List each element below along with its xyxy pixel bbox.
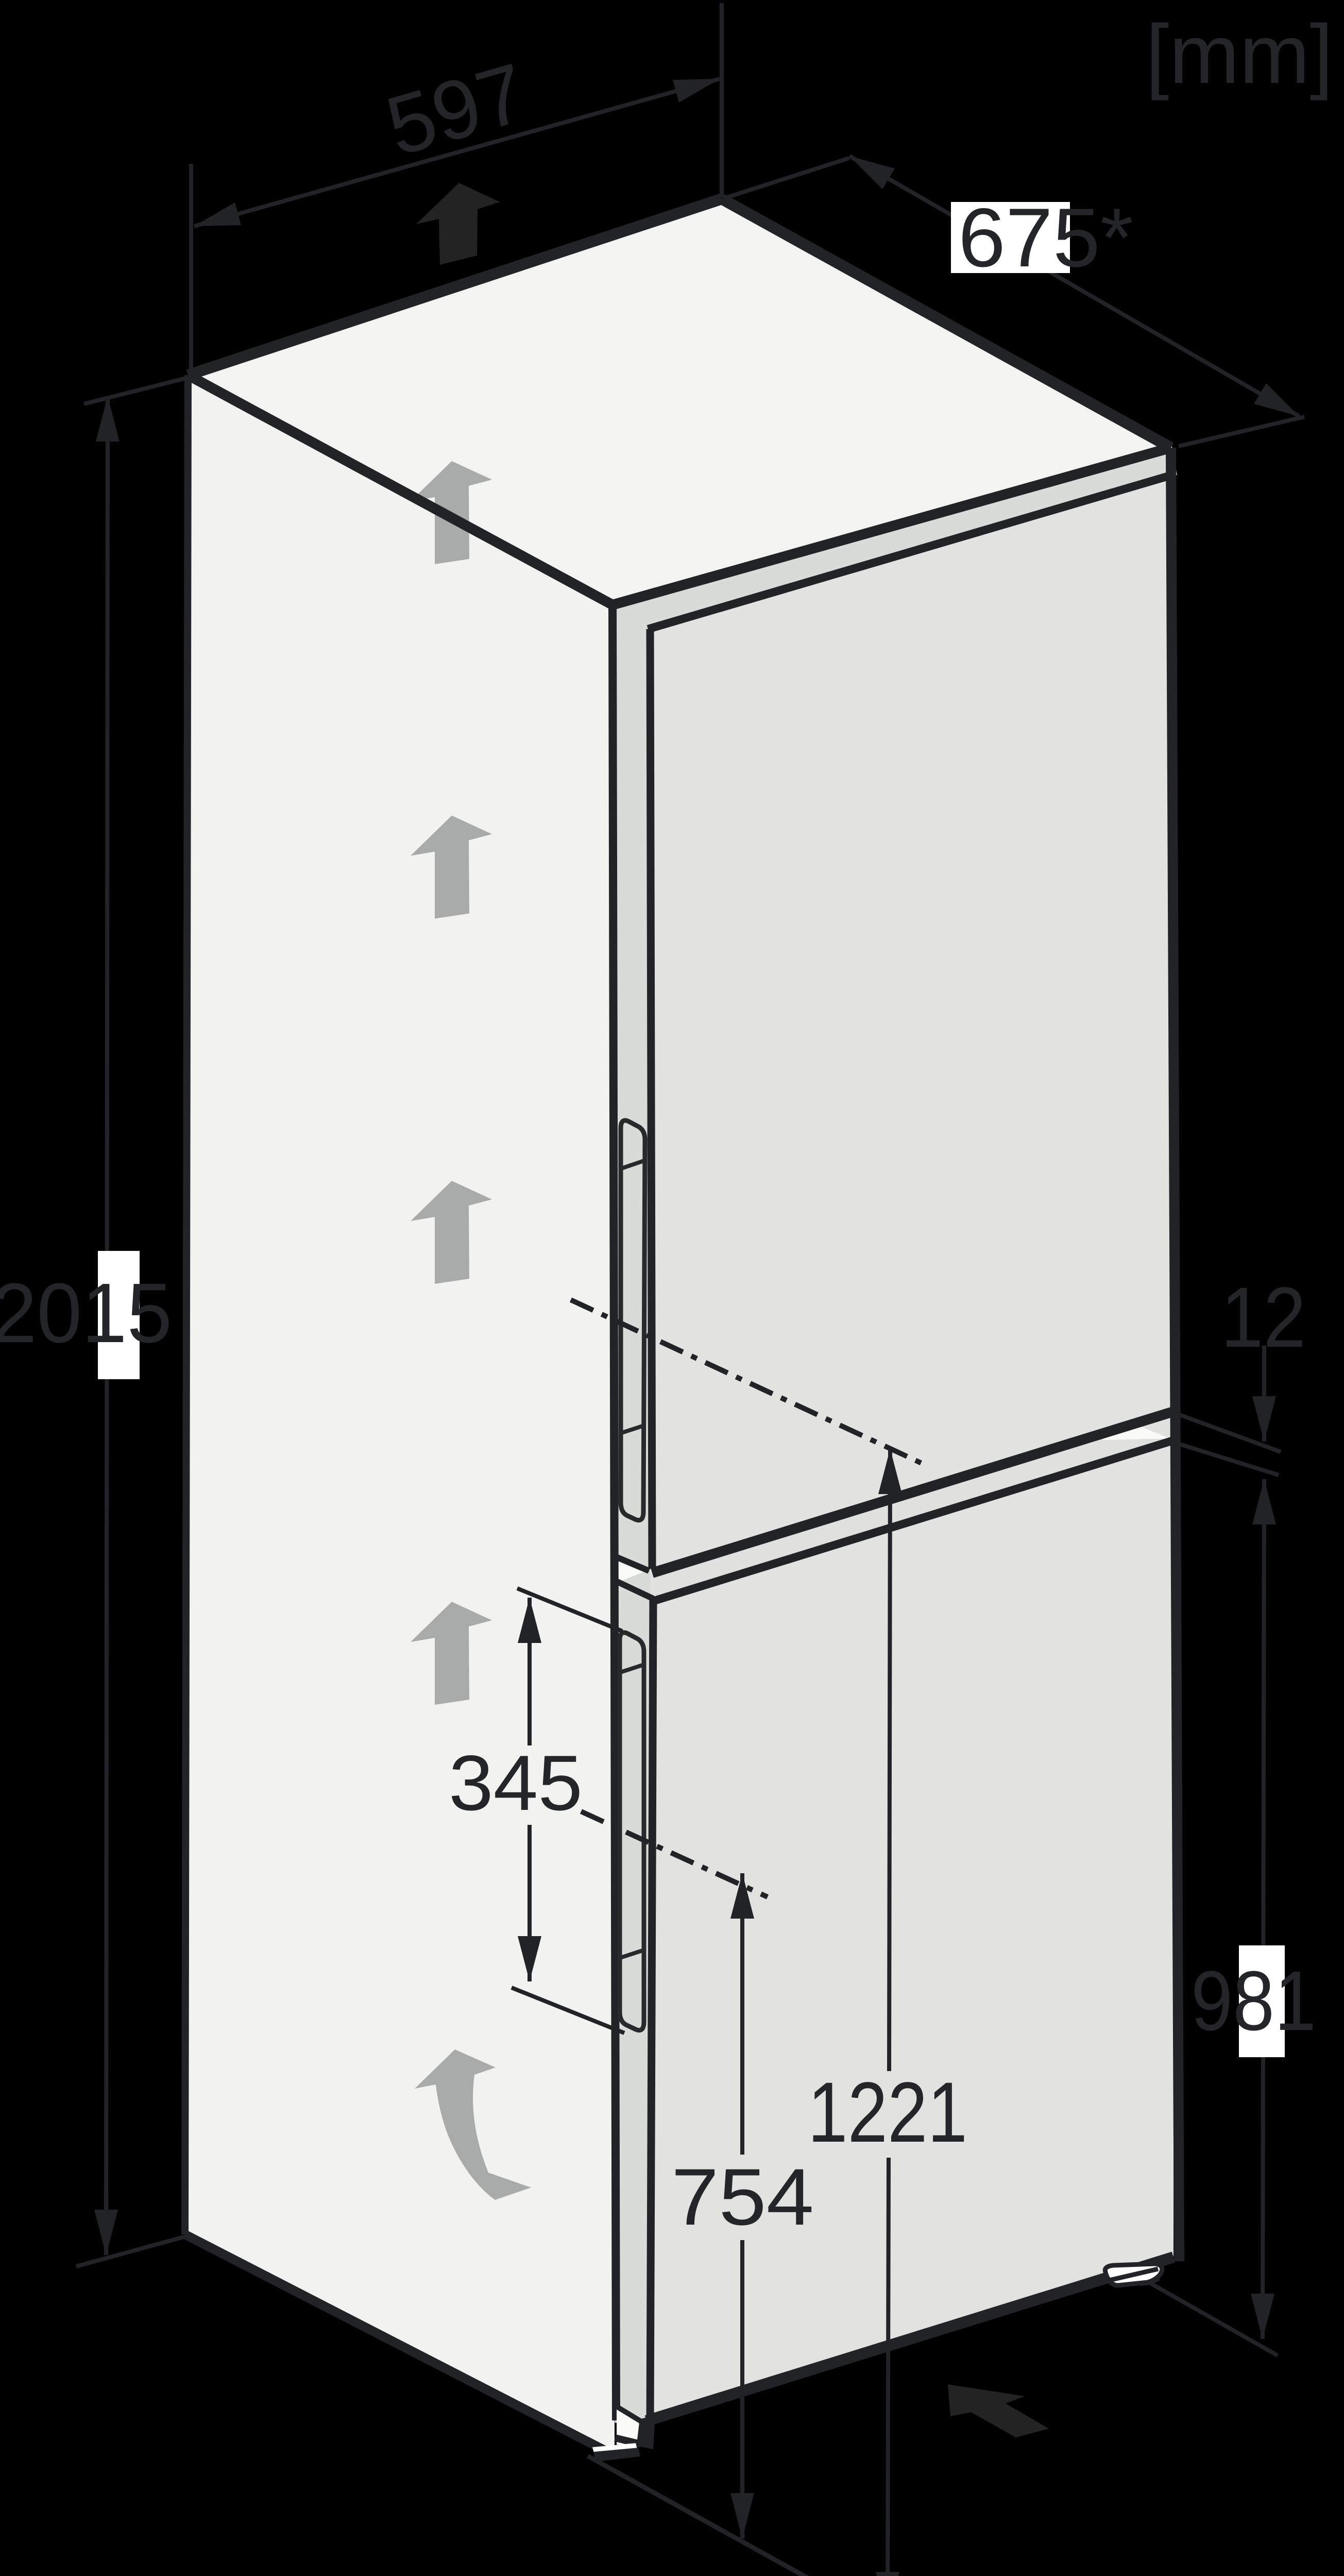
svg-text:2015: 2015 xyxy=(0,1266,172,1360)
svg-text:12: 12 xyxy=(1221,1270,1306,1365)
svg-text:675*: 675* xyxy=(958,191,1133,284)
svg-text:754: 754 xyxy=(671,2153,814,2242)
svg-text:345: 345 xyxy=(449,1739,583,1827)
svg-text:981: 981 xyxy=(1191,1954,1316,2048)
svg-text:[mm]: [mm] xyxy=(1146,8,1333,101)
svg-text:1221: 1221 xyxy=(808,2065,967,2160)
